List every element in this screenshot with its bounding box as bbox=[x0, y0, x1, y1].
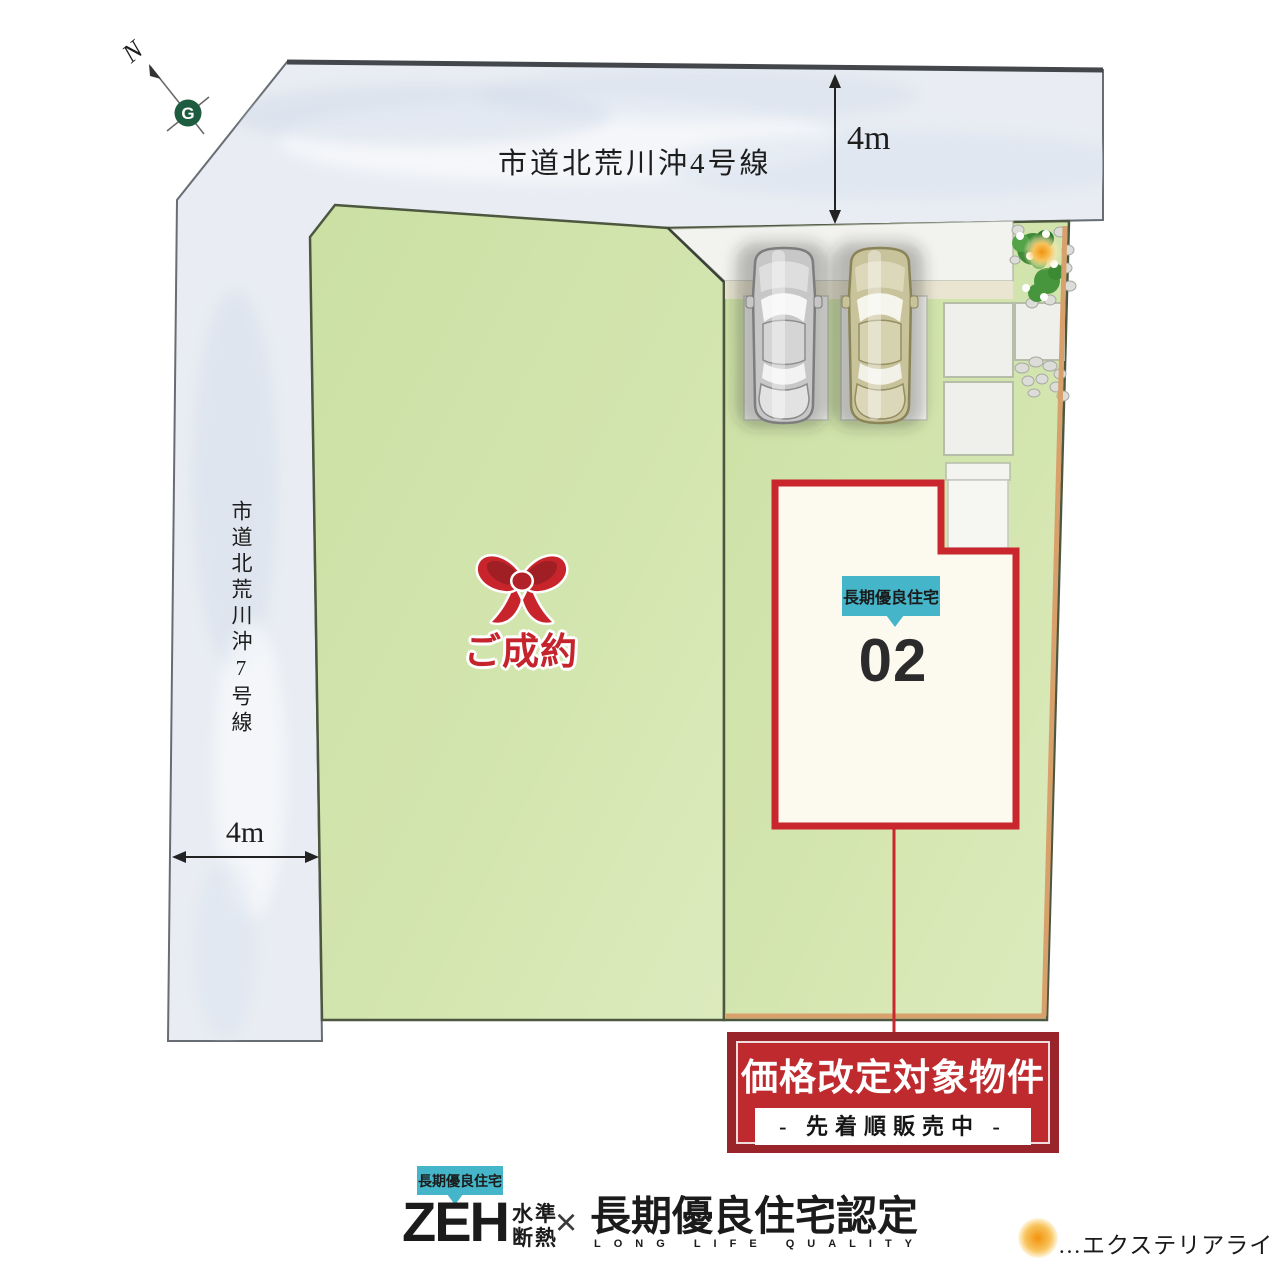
zeh-logo: ZEH bbox=[402, 1194, 508, 1250]
car-khaki-icon bbox=[832, 242, 924, 428]
porch bbox=[948, 480, 1008, 548]
site-plan: G N 市道北荒川沖4号線 4m 市道北荒川沖7号線 4m ご成約 長期優良住宅… bbox=[0, 0, 1280, 1280]
lot1-sold-label: ご成約 bbox=[446, 621, 596, 675]
north-label: N bbox=[116, 34, 150, 69]
stepping-stone-3 bbox=[1015, 303, 1064, 360]
price-banner-title: 価格改定対象物件 bbox=[736, 1047, 1050, 1101]
stepping-stone-2 bbox=[944, 382, 1013, 455]
multiply-sign: × bbox=[555, 1204, 577, 1242]
exterior-light-legend-text: …エクステリアライト bbox=[1058, 1226, 1280, 1260]
zeh-sub-labels: 水準 断熱 bbox=[512, 1203, 558, 1250]
long-life-cert-label: 長期優良住宅認定 bbox=[590, 1196, 918, 1237]
zeh-sub-bottom: 断熱 bbox=[512, 1227, 558, 1251]
car-silver-icon bbox=[736, 242, 828, 428]
stepping-stone-1 bbox=[944, 303, 1013, 377]
long-life-cert-sub: LONG LIFE QUALITY bbox=[594, 1238, 925, 1250]
exterior-light-icon bbox=[1023, 233, 1061, 271]
porch-step bbox=[946, 463, 1010, 480]
logo-letter: G bbox=[181, 104, 194, 123]
house-number: 02 bbox=[833, 626, 953, 695]
road-name-top: 市道北荒川沖4号線 bbox=[498, 140, 798, 182]
price-banner-subtitle: - 先着順販売中 - bbox=[755, 1108, 1031, 1145]
price-banner: 価格改定対象物件 - 先着順販売中 - bbox=[727, 1032, 1059, 1153]
exterior-light-legend-icon bbox=[1018, 1218, 1058, 1258]
compass: G N bbox=[116, 34, 209, 134]
road-name-left: 市道北荒川沖7号線 bbox=[226, 500, 256, 737]
road-width-left: 4m bbox=[213, 816, 277, 850]
zeh-sub-top: 水準 bbox=[512, 1203, 558, 1227]
road-width-top: 4m bbox=[847, 120, 890, 158]
house-certification-badge: 長期優良住宅 bbox=[842, 576, 940, 616]
site-plan-svg: G N bbox=[0, 0, 1280, 1280]
